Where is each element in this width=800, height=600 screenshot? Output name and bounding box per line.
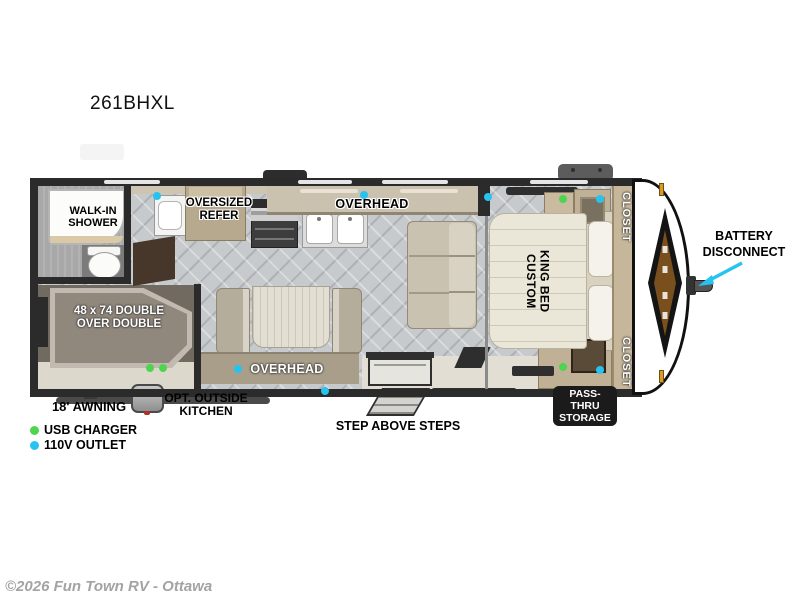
cap-marker-bottom <box>659 370 664 383</box>
usb-charger-dot <box>159 364 167 372</box>
110v-outlet-dot <box>321 387 329 395</box>
range-grate-line <box>255 238 294 240</box>
110v-outlet-dot <box>153 192 161 200</box>
legend-outlet-dot <box>30 441 39 450</box>
110v-outlet-dot <box>360 191 368 199</box>
bunk-window <box>36 297 48 347</box>
model-title: 261BHXL <box>90 93 175 115</box>
sofa-back-cushions <box>449 223 475 327</box>
window-slit <box>530 180 588 184</box>
overhead-dinette-label: OVERHEAD <box>246 362 328 376</box>
divider-curtain-track <box>485 216 488 390</box>
closet-top-label: CLOSET <box>614 188 638 246</box>
battery-arrow <box>692 256 748 290</box>
roof-vent-screw <box>598 168 602 172</box>
dinette-bench-right <box>332 288 362 354</box>
pillow-bottom <box>588 285 614 341</box>
110v-outlet-dot <box>484 193 492 201</box>
faucet-dot <box>348 217 352 221</box>
window-slit <box>298 180 352 184</box>
closet-bottom-label: CLOSET <box>614 333 638 391</box>
range-grate-line <box>255 228 294 230</box>
entry-step-platform-line <box>374 364 426 366</box>
dinette-table <box>252 286 330 348</box>
wall-bunkroom-divider <box>194 284 201 392</box>
roof-vent-screw <box>571 168 575 172</box>
wall-bathroom-bottom <box>30 277 131 284</box>
front-cap-logo <box>648 208 682 358</box>
cap-marker-top <box>659 183 664 196</box>
legend-usb-label: USB CHARGER <box>44 423 137 437</box>
sofa-seat-lines <box>409 292 449 294</box>
wall-bottom <box>30 389 642 397</box>
window-slit <box>382 180 448 184</box>
overhead-handle <box>400 189 458 193</box>
wall-rear <box>30 178 38 397</box>
110v-outlet-dot <box>596 366 604 374</box>
shower-rim <box>50 236 123 243</box>
110v-outlet-dot <box>234 365 242 373</box>
entry-step-platform <box>368 358 432 386</box>
walk-in-shower-label: WALK-IN SHOWER <box>56 205 130 230</box>
usb-charger-dot <box>559 195 567 203</box>
wall-bathroom-divider <box>124 183 131 282</box>
legend-usb-dot <box>30 426 39 435</box>
copyright-text: ©2026 Fun Town RV - Ottawa <box>5 578 212 595</box>
pass-thru-storage-badge: PASS-THRU STORAGE <box>553 386 617 426</box>
pillow-top <box>588 221 614 277</box>
faucet-dot <box>317 217 321 221</box>
pantry-cabinet <box>133 236 175 286</box>
sofa-seat-lines <box>409 255 449 257</box>
outside-kitchen-label: OPT. OUTSIDE KITCHEN <box>158 392 254 419</box>
floorplan-scene: 261BHXL WALK-IN SHOWER 48 x 74 DOUBLE OV… <box>0 0 800 600</box>
awning-label: 18' AWNING <box>42 400 136 415</box>
bunk-label: 48 x 74 DOUBLE OVER DOUBLE <box>58 305 180 331</box>
king-bed-label: CUSTOM KING BED <box>520 230 554 332</box>
steps-label: STEP ABOVE STEPS <box>328 419 468 433</box>
overhead-handle <box>300 189 358 193</box>
dinette-bench-left <box>216 288 250 354</box>
watermark-smudge <box>80 144 124 160</box>
110v-outlet-dot <box>596 195 604 203</box>
overhead-kitchen-label: OVERHEAD <box>330 197 414 211</box>
bed-foot-mat <box>512 366 554 376</box>
toilet-bowl <box>88 252 121 279</box>
legend-outlet-label: 110V OUTLET <box>44 438 126 452</box>
outside-kitchen-valve <box>144 411 150 415</box>
usb-charger-dot <box>146 364 154 372</box>
refer-label: OVERSIZED REFER <box>174 197 264 223</box>
window-slit <box>104 180 160 184</box>
usb-charger-dot <box>559 363 567 371</box>
